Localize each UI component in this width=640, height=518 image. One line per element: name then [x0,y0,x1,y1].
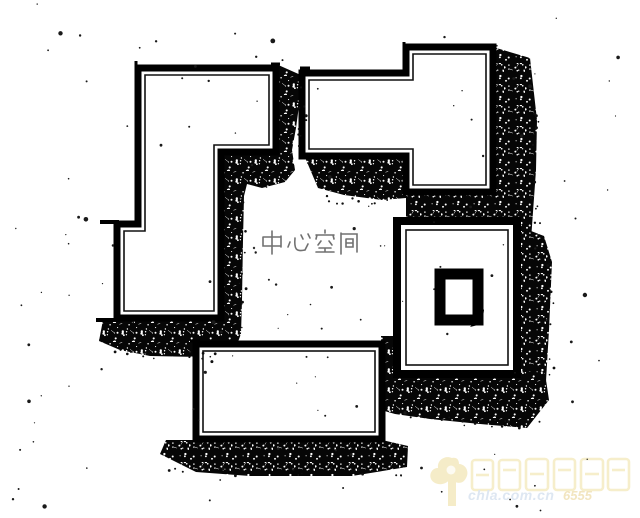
svg-text:chla.com.cn: chla.com.cn [468,487,554,503]
svg-text:6555: 6555 [563,488,593,503]
